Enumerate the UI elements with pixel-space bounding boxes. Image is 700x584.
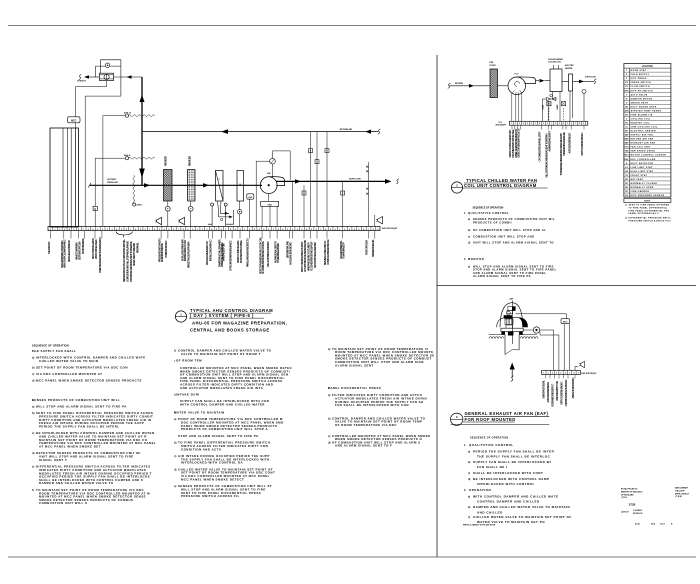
svg-text:AHU SPEC/EQUIP: AHU SPEC/EQUIP xyxy=(382,227,398,230)
svg-text:DAMPER AND CHILLED WATER VALVE: DAMPER AND CHILLED WATER VALVE TO MAINTA… xyxy=(473,505,570,509)
svg-text:EXHAUST AIR FAN: EXHAUST AIR FAN xyxy=(631,142,656,145)
svg-text:AND CHILLED: AND CHILLED xyxy=(477,510,503,514)
svg-text:SENT TO FIRE PANEL DIFFEREN: SENT TO FIRE PANEL DIFFEREN xyxy=(629,204,670,207)
svg-text:QUALITATIVE CONTROL: QUALITATIVE CONTROL xyxy=(469,443,514,447)
svg-text:DAMPER MOTOR: DAMPER MOTOR xyxy=(631,97,653,100)
svg-text:4: 4 xyxy=(116,228,117,231)
svg-text:SMOKE DETR: SMOKE DETR xyxy=(631,102,649,104)
svg-text:6: 6 xyxy=(221,229,222,231)
svg-text:9: 9 xyxy=(140,229,141,231)
svg-text:AHS-13: AHS-13 xyxy=(124,111,132,114)
svg-text:AND ACTUATOR MODULATES FRESH A: AND ACTUATOR MODULATES FRESH AIR INTA xyxy=(180,386,264,390)
svg-text:MCC PANEL WHEN SMOKE DETECTOR: MCC PANEL WHEN SMOKE DETECTOR SENSES PRO… xyxy=(36,378,142,382)
svg-text:2: 2 xyxy=(548,373,549,375)
svg-text:RETURN: RETURN xyxy=(455,83,464,85)
svg-text:4: 4 xyxy=(306,228,307,231)
svg-text:OUTSIDE: OUTSIDE xyxy=(107,179,117,181)
svg-text:2: 2 xyxy=(59,229,60,231)
svg-text:ACTUATOR MODULATES FRESH AIR: ACTUATOR MODULATES FRESH AIR xyxy=(304,240,307,272)
svg-text:5: 5 xyxy=(74,229,75,231)
svg-text:DIFF PRESS: DIFF PRESS xyxy=(631,78,647,80)
svg-text:SEQUENCE OF OPERATION: SEQUENCE OF OPERATION xyxy=(32,345,69,348)
svg-text:2: 2 xyxy=(249,229,250,231)
svg-text:ROOM LVL: ROOM LVL xyxy=(633,513,644,515)
svg-text:THE SUPPLY F: THE SUPPLY F xyxy=(48,241,51,254)
svg-text:FAN SHALL BE INTERLOCK: FAN SHALL BE INTERLOCK xyxy=(206,241,209,265)
svg-text:COMBUSTION UNIT WILL STOP AND: COMBUSTION UNIT WILL STOP AND xyxy=(473,234,535,238)
svg-text:3: 3 xyxy=(559,123,560,125)
svg-text:DETECTOR SENSES PRODUCTS: DETECTOR SENSES PRODUCTS xyxy=(518,128,521,157)
svg-text:CONTROL DAMPER AND CHILLED: CONTROL DAMPER AND CHILLED xyxy=(477,500,540,504)
svg-text:3: 3 xyxy=(349,229,350,231)
svg-text:SWITCH ACROSS FIL: SWITCH ACROSS FIL xyxy=(543,380,546,399)
svg-text:ii.: ii. xyxy=(174,393,176,397)
svg-text:AHU-05 FOR MAGAZINE PREPARATIO: AHU-05 FOR MAGAZINE PREPARATION, xyxy=(192,321,287,326)
svg-text:POINT OF ROOM: POINT OF ROOM xyxy=(366,240,369,255)
svg-text:SUPPLY AIR: SUPPLY AIR xyxy=(349,177,361,180)
svg-text:a): a) xyxy=(328,347,330,351)
svg-text:QUALITATIVE CONTROL: QUALITATIVE CONTROL xyxy=(468,211,509,215)
svg-text:3: 3 xyxy=(552,373,553,375)
svg-text:PRESSURE SWITCH ACROSS FIL: PRESSURE SWITCH ACROSS FIL xyxy=(181,494,240,498)
svg-text:4: 4 xyxy=(259,228,260,231)
svg-text:FRESH AIR: FRESH AIR xyxy=(107,181,118,184)
svg-text:ACROSS FILTER INDICATE: ACROSS FILTER INDICATE xyxy=(290,242,293,265)
svg-text:FAN SHALL BE INTERLOCKED WITH: FAN SHALL BE INTERLOCKED WITH CON xyxy=(335,403,409,407)
svg-text:3: 3 xyxy=(301,229,302,231)
svg-text:8: 8 xyxy=(373,229,374,231)
svg-text:ACROSS FILTER INDICA: ACROSS FILTER INDICA xyxy=(568,133,571,154)
svg-text:WITH CONTROL DAMPER AND CHILLE: WITH CONTROL DAMPER AND CHILLED WATER xyxy=(180,403,265,407)
svg-text:8: 8 xyxy=(325,229,326,231)
svg-text:7: 7 xyxy=(83,229,84,231)
svg-text:a): a) xyxy=(468,218,470,221)
svg-text:CHLD SUPPLY: CHLD SUPPLY xyxy=(631,74,650,76)
svg-text:FAN COIL UNIT: FAN COIL UNIT xyxy=(631,146,652,149)
svg-text:0: 0 xyxy=(335,229,336,231)
svg-text:c): c) xyxy=(174,454,176,458)
svg-text:c): c) xyxy=(468,516,470,519)
svg-text:9: 9 xyxy=(93,229,94,231)
svg-text:HEATING COIL: HEATING COIL xyxy=(631,121,651,124)
svg-text:APPR CONSULT: APPR CONSULT xyxy=(675,492,690,495)
svg-text:THE LIGHT: THE LIGHT xyxy=(675,490,685,492)
svg-text:1: 1 xyxy=(292,229,293,231)
svg-text:AT MCC PANEL WHEN SMOKE DET: AT MCC PANEL WHEN SMOKE DET xyxy=(39,444,101,448)
svg-text:LEGEND: LEGEND xyxy=(642,66,653,68)
svg-text:a): a) xyxy=(468,265,470,268)
svg-text:6: 6 xyxy=(78,229,79,231)
svg-text:2: 2 xyxy=(344,229,345,231)
svg-text:1 WORKS: 1 WORKS xyxy=(633,510,643,512)
svg-text:3: 3 xyxy=(254,229,255,231)
svg-text:7: 7 xyxy=(130,229,131,231)
svg-text:4: 4 xyxy=(354,228,355,231)
svg-text:LOW LIMIT STAT: LOW LIMIT STAT xyxy=(631,166,653,169)
svg-text:5.: 5. xyxy=(464,258,466,261)
svg-text:1: 1 xyxy=(102,229,103,231)
svg-text:AND CHILLED WATER VA: AND CHILLED WATER VA xyxy=(68,240,71,262)
svg-text:ELECTRIC: ELECTRIC xyxy=(565,65,575,67)
svg-text:AIR VENT: AIR VENT xyxy=(631,178,644,181)
svg-text:COOLING COIL: COOLING COIL xyxy=(631,118,651,120)
svg-text:VIA DDC CONTROLLER MOUNTED AT: VIA DDC CONTROLLER MOUNTED AT xyxy=(36,372,102,376)
svg-text:AND ACTUATOR MODU: AND ACTUATOR MODU xyxy=(572,377,575,398)
svg-text:3: 3 xyxy=(64,229,65,231)
svg-text:d): d) xyxy=(468,478,471,481)
svg-text:ACROSS FILTER INDICA: ACROSS FILTER INDICA xyxy=(547,382,550,403)
svg-text:FIRE DAMPER: FIRE DAMPER xyxy=(631,190,650,193)
svg-text:8: 8 xyxy=(230,229,231,231)
svg-text:5: 5 xyxy=(216,229,217,231)
svg-text:b): b) xyxy=(174,441,177,445)
svg-text:FIRE PANEL: FIRE PANEL xyxy=(136,242,139,253)
svg-text:NOTE:: NOTE: xyxy=(644,200,651,202)
svg-text:FROST STAT: FROST STAT xyxy=(631,174,648,177)
svg-text:d): d) xyxy=(32,378,35,382)
svg-text:MAINTAIN SET POINT: MAINTAIN SET POINT xyxy=(223,242,226,261)
svg-text:COMBUSTION UNIT WILL S: COMBUSTION UNIT WILL S xyxy=(39,501,87,505)
svg-text:d): d) xyxy=(468,242,470,245)
svg-text:ALARM SIGNAL SENT: ALARM SIGNAL SENT xyxy=(335,363,374,367)
svg-text:PERIOD THE SUPPLY FAN SHALL BE: PERIOD THE SUPPLY FAN SHALL BE INTER xyxy=(473,449,555,453)
svg-text:FINE FILTER: FINE FILTER xyxy=(190,155,192,166)
svg-text:9: 9 xyxy=(282,229,283,231)
svg-text:9: 9 xyxy=(377,229,378,231)
svg-text:2: 2 xyxy=(202,229,203,231)
svg-text:( T.R.H.: ( T.R.H. xyxy=(621,497,628,499)
svg-text:5: 5 xyxy=(263,229,264,231)
svg-text:MONITOR: MONITOR xyxy=(468,257,484,261)
svg-text:CHW COOLING COIL: CHW COOLING COIL xyxy=(631,127,659,129)
svg-text:4.: 4. xyxy=(328,386,330,390)
svg-text:b): b) xyxy=(468,506,471,509)
svg-text:2: 2 xyxy=(555,123,556,125)
svg-text:DIFFERENTIAL PRESSURE: DIFFERENTIAL PRESSURE xyxy=(563,132,566,156)
svg-text:FILTER: FILTER xyxy=(490,65,497,67)
svg-text:PANEL DIFFERENTIAL PRESS: PANEL DIFFERENTIAL PRESS xyxy=(328,386,381,390)
svg-text:SHALL BE INTERLOCKED WITH CONT: SHALL BE INTERLOCKED WITH CONT xyxy=(473,471,543,475)
svg-text:8: 8 xyxy=(278,229,279,231)
svg-text:0: 0 xyxy=(145,229,146,231)
svg-text:2: 2 xyxy=(297,229,298,231)
svg-text:WATER VALVE TO MAINTAIN: WATER VALVE TO MAINTAIN xyxy=(174,411,225,415)
svg-text:5: 5 xyxy=(311,229,312,231)
svg-text:9: 9 xyxy=(330,229,331,231)
svg-text:PRE FILTER: PRE FILTER xyxy=(166,156,168,166)
svg-text:FAN SHALL BE I: FAN SHALL BE I xyxy=(477,465,507,469)
svg-text:PRODUCTS OF COMBU: PRODUCTS OF COMBU xyxy=(473,221,512,225)
svg-text:WITH CONTROL DAMPER AND CHILLE: WITH CONTROL DAMPER AND CHILLED WATE xyxy=(473,494,558,498)
svg-text:1.: 1. xyxy=(32,349,34,353)
svg-text:5: 5 xyxy=(168,229,169,231)
svg-text:b): b) xyxy=(468,229,470,232)
svg-text:WHEN SMOKE DETECTOR SENSES PRO: WHEN SMOKE DETECTOR SENSES PRO xyxy=(99,237,102,273)
svg-text:c): c) xyxy=(32,372,34,376)
svg-text:3: 3 xyxy=(519,123,520,125)
svg-text:d): d) xyxy=(174,467,177,471)
svg-text:OF COMBUSTION UNIT WILL STOP A: OF COMBUSTION UNIT WILL STOP AND AL xyxy=(473,228,546,232)
svg-text:VSD: VSD xyxy=(625,151,630,153)
svg-text:3: 3 xyxy=(159,229,160,231)
svg-text:CONTROL DAMPER AND CHI: CONTROL DAMPER AND CHI xyxy=(327,239,330,265)
svg-text:ALARM SIGNAL SENT T: ALARM SIGNAL SENT T xyxy=(549,130,552,151)
svg-text:1: 1 xyxy=(149,229,150,231)
svg-text:a): a) xyxy=(468,450,470,453)
svg-text:1: 1 xyxy=(543,373,544,375)
svg-text:WILL STOP AND ALARM SIGN: WILL STOP AND ALARM SIGN xyxy=(267,241,270,267)
svg-text:b): b) xyxy=(468,461,471,464)
svg-text:VSD: VSD xyxy=(267,204,272,206)
svg-text:3.: 3. xyxy=(174,411,176,415)
svg-text:c): c) xyxy=(328,434,330,438)
svg-text:TO FIRE PANEL DIFFERENTIAL: TO FIRE PANEL DIFFERENTIAL xyxy=(629,206,669,209)
svg-text:e): e) xyxy=(174,484,176,488)
svg-text:8: 8 xyxy=(573,373,574,375)
svg-text:6: 6 xyxy=(268,229,269,231)
svg-text:NORMALLY CLOSED: NORMALLY CLOSED xyxy=(631,182,658,185)
svg-text:8: 8 xyxy=(135,229,136,231)
svg-text:7: 7 xyxy=(575,123,576,125)
svg-text:OF COMBUSTION UNIT WILL STOP: OF COMBUSTION UNIT WILL STOP xyxy=(539,131,542,161)
svg-text:GENERAL EXHAUST AIR FAN (EAF): GENERAL EXHAUST AIR FAN (EAF) xyxy=(465,411,549,416)
svg-text:HEATER: HEATER xyxy=(565,67,573,70)
svg-text:7: 7 xyxy=(320,229,321,231)
svg-text:9: 9 xyxy=(543,123,544,125)
svg-text:1: 1 xyxy=(551,123,552,125)
svg-text:PERIOD THE SUPPLY FAN SHA: PERIOD THE SUPPLY FAN SHA xyxy=(187,241,190,268)
svg-text:SUPPLY FAN SHALL BE INTER: SUPPLY FAN SHALL BE INTER xyxy=(314,242,317,268)
svg-text:ROYAL PROJECTS: ROYAL PROJECTS xyxy=(621,488,638,491)
svg-text:THE SUPPLY FAN SHALL BE INTERL: THE SUPPLY FAN SHALL BE INTERLOC xyxy=(477,454,551,458)
svg-text:( T M B ): ( T M B ) xyxy=(675,496,682,498)
svg-text:9: 9 xyxy=(187,229,188,231)
svg-text:COIL UNIT CONTROL DIAGRAM: COIL UNIT CONTROL DIAGRAM xyxy=(464,183,537,188)
svg-text:8: 8 xyxy=(539,123,540,125)
svg-text:6: 6 xyxy=(571,123,572,125)
svg-text:PRODUCTS OF COMBUSTION UNIT WI: PRODUCTS OF COMBUSTION UNIT WILL STOP A xyxy=(181,427,268,431)
svg-text:7: 7 xyxy=(368,229,369,231)
svg-text:SENSES PRODUCTS OF COMBUSTION: SENSES PRODUCTS OF COMBUSTION UNIT WILL xyxy=(32,398,120,402)
svg-text:AT MCC PANEL WHEN: AT MCC PANEL WHEN xyxy=(95,239,98,259)
svg-text:6: 6 xyxy=(316,229,317,231)
svg-text:PANEL WHEN SMOKE DETECTO: PANEL WHEN SMOKE DETECTO xyxy=(247,238,250,267)
svg-text:FCU: FCU xyxy=(515,74,520,76)
svg-text:SET POINT OF ROOM TEMPERATURE: SET POINT OF ROOM TEMPERATURE VIA DDC CO… xyxy=(36,365,128,369)
svg-text:OCCUPIED PERIOD THE SUPPLY F: OCCUPIED PERIOD THE SUPPLY F xyxy=(310,241,313,271)
svg-text:SUPPLY AIR: SUPPLY AIR xyxy=(585,75,596,78)
svg-text:UNIT WILL STOP AND ALARM SIGNA: UNIT WILL STOP AND ALARM SIGNAL SENT TO xyxy=(473,241,554,245)
svg-text:CONDITION AND ACTU: CONDITION AND ACTU xyxy=(181,447,222,451)
svg-text:OPERATION: OPERATION xyxy=(469,488,491,492)
svg-text:VAR SPEED DRIVE: VAR SPEED DRIVE xyxy=(631,150,656,153)
svg-text:TEMPERATURE VIA: TEMPERATURE VIA xyxy=(372,239,375,257)
svg-text:BE INTERLOCKED WITH CONTROL DA: BE INTERLOCKED WITH CONTROL DAMP xyxy=(473,477,549,481)
svg-text:FILTER INDICATES DIR: FILTER INDICATES DIR xyxy=(161,243,164,262)
svg-text:2: 2 xyxy=(107,229,108,231)
svg-text:TO MAINTAIN SET P: TO MAINTAIN SET P xyxy=(343,242,346,259)
svg-text:CHWS IN: CHWS IN xyxy=(77,80,86,82)
svg-text:b): b) xyxy=(32,365,35,369)
svg-text:0: 0 xyxy=(97,229,98,231)
svg-text:4: 4 xyxy=(211,228,212,231)
svg-text:MAIN LIBRARY: MAIN LIBRARY xyxy=(675,487,689,490)
svg-text:f): f) xyxy=(174,349,176,353)
svg-text:5: 5 xyxy=(527,123,528,125)
svg-text:AVRGING TEMP SENSR: AVRGING TEMP SENSR xyxy=(631,109,662,112)
svg-text:MOTOR CONTROL CENTER: MOTOR CONTROL CENTER xyxy=(631,155,667,157)
svg-text:a): a) xyxy=(468,495,470,498)
svg-text:DIFFERENTIAL PRESSURE SWITC: DIFFERENTIAL PRESSURE SWITC xyxy=(629,217,672,220)
svg-text:6: 6 xyxy=(173,229,174,231)
svg-text:HIGH LIMIT STAT: HIGH LIMIT STAT xyxy=(631,170,654,173)
svg-text:1: 1 xyxy=(55,229,56,231)
svg-text:6: 6 xyxy=(565,373,566,375)
svg-text:CENTRAL AND BOOKS STORAGE: CENTRAL AND BOOKS STORAGE xyxy=(190,328,270,333)
svg-text:9: 9 xyxy=(235,229,236,231)
svg-text:6: 6 xyxy=(126,229,127,231)
svg-text:d): d) xyxy=(328,440,331,444)
svg-text:a): a) xyxy=(32,405,34,409)
svg-text:DDC: DDC xyxy=(625,159,630,161)
svg-text:FLOW SWITCH: FLOW SWITCH xyxy=(631,86,650,88)
svg-text:MCC: MCC xyxy=(71,119,77,122)
svg-text:( DAY ) SYSTEM ( PIPE-6 ): ( DAY ) SYSTEM ( PIPE-6 ) xyxy=(190,313,254,318)
svg-text:DIRTY CONDITION AND AC: DIRTY CONDITION AND AC xyxy=(581,132,584,155)
svg-text:STOP AND ALARM SIGNAL SENT TO: STOP AND ALARM SIGNAL SENT TO FIRE PA xyxy=(178,434,259,438)
svg-text:INTAKE DURI: INTAKE DURI xyxy=(176,393,200,397)
svg-text:9: 9 xyxy=(578,373,579,375)
svg-text:AHS-1: AHS-1 xyxy=(137,204,144,207)
svg-text:1.: 1. xyxy=(464,444,466,447)
svg-text:7: 7 xyxy=(569,373,570,375)
svg-text:ROOM STAT: ROOM STAT xyxy=(631,69,647,72)
svg-text:0: 0 xyxy=(547,123,548,125)
svg-text:CONDITION AND ACTUATOR M: CONDITION AND ACTUATOR M xyxy=(565,380,568,407)
svg-text:ROOM TEMPERA: ROOM TEMPERA xyxy=(82,238,85,254)
svg-text:d): d) xyxy=(32,451,35,455)
svg-text:PANEL DIFFERENTIAL P: PANEL DIFFERENTIAL P xyxy=(629,212,660,215)
svg-text:0: 0 xyxy=(192,229,193,231)
svg-text:OF ROOM TEMPERATURE VIA DDC: OF ROOM TEMPERATURE VIA DDC xyxy=(335,423,397,427)
svg-text:5: 5 xyxy=(567,123,568,125)
svg-text:PRESSURE SWITCH ACROSS FILT: PRESSURE SWITCH ACROSS FILT xyxy=(629,219,672,222)
svg-text:CHILLED WATER: CHILLED WATER xyxy=(548,58,563,61)
svg-text:0: 0 xyxy=(50,229,51,231)
svg-text:OF COMBUSTION UNIT WILL STOP A: OF COMBUSTION UNIT WILL STOP AN xyxy=(262,241,265,274)
svg-text:7: 7 xyxy=(225,229,226,231)
svg-text:INTERLOCKED WITH CONTROL: INTERLOCKED WITH CONTROL xyxy=(477,482,535,486)
svg-text:PRESS SWITCH: PRESS SWITCH xyxy=(631,82,652,84)
svg-text:ALARM SIGNAL SENT TO FIRE PA: ALARM SIGNAL SENT TO FIRE PA xyxy=(473,274,531,278)
svg-text:a): a) xyxy=(174,417,176,421)
svg-text:8: 8 xyxy=(88,229,89,231)
svg-text:6: 6 xyxy=(363,229,364,231)
svg-text:ELECTRIC HEATER: ELECTRIC HEATER xyxy=(631,130,656,133)
svg-text:4: 4 xyxy=(69,228,70,231)
svg-text:SEQUENCE OF OPERATION: SEQUENCE OF OPERATION xyxy=(470,436,508,439)
svg-text:CHWR: CHWR xyxy=(557,104,559,110)
svg-text:1: 1 xyxy=(339,229,340,231)
svg-text:INDICATES DIRTY CON: INDICATES DIRTY CON xyxy=(556,381,559,401)
svg-text:MCC PANEL WHEN SMOKE DETECT: MCC PANEL WHEN SMOKE DETECT xyxy=(181,477,244,481)
svg-text:NORMALLY OPEN: NORMALLY OPEN xyxy=(631,186,654,189)
svg-text:5: 5 xyxy=(121,229,122,231)
svg-text:5: 5 xyxy=(358,229,359,231)
svg-text:4: 4 xyxy=(164,228,165,231)
svg-text:3: 3 xyxy=(206,229,207,231)
svg-text:DDC CONTROLLER: DDC CONTROLLER xyxy=(631,159,656,161)
svg-text:2.: 2. xyxy=(32,398,34,402)
svg-text:FILTER INDICATES DIRTY C: FILTER INDICATES DIRTY C xyxy=(552,383,555,406)
svg-text:SUPPLY FAN SHALL BE INTERLOCKE: SUPPLY FAN SHALL BE INTERLOCKED WI xyxy=(473,460,551,464)
svg-text:THE SUPPLY FAN SHALL: THE SUPPLY FAN SHALL xyxy=(32,349,76,353)
svg-text:e): e) xyxy=(32,465,34,469)
svg-text:1: 1 xyxy=(197,229,198,231)
svg-text:MCC: MCC xyxy=(563,322,568,324)
svg-text:f): f) xyxy=(32,488,34,492)
svg-text:5: 5 xyxy=(561,373,562,375)
svg-text:CHILLED WATER VALVE TO MAINTAI: CHILLED WATER VALVE TO MAINTAIN SET POIN… xyxy=(473,515,572,519)
svg-text:DIFF PRESSURE SENSOR: DIFF PRESSURE SENSOR xyxy=(631,195,665,197)
svg-text:MCC: MCC xyxy=(624,155,629,157)
svg-text:DIRTY CONDITION AND AC: DIRTY CONDITION AND AC xyxy=(561,381,564,404)
svg-text:SUPPLY AIR FAN: SUPPLY AIR FAN xyxy=(631,134,654,137)
svg-text:OF ROOM TEMPERATURE VIA DDC: OF ROOM TEMPERATURE VIA DDC xyxy=(229,240,232,271)
svg-text:3: 3 xyxy=(112,229,113,231)
svg-text:FOR ROOF MOUNTED: FOR ROOF MOUNTED xyxy=(465,417,516,422)
svg-text:CHILLED WATER VALVE TO MAIN: CHILLED WATER VALVE TO MAIN xyxy=(39,359,98,363)
svg-text:AND ALARM SIGNAL SENT TO F: AND ALARM SIGNAL SENT TO F xyxy=(335,444,392,448)
svg-text:DUCT DETECTOR: DUCT DETECTOR xyxy=(631,163,654,165)
svg-text:PERIOD THE SUPPLY FAN SHALL BE: PERIOD THE SUPPLY FAN SHALL BE INTERL xyxy=(39,424,120,428)
svg-text:OF HIGHLAND: OF HIGHLAND xyxy=(621,493,634,496)
svg-text:FCU: FCU xyxy=(625,147,630,149)
svg-text:DIFF PR SWITCH: DIFF PR SWITCH xyxy=(631,90,654,92)
svg-text:FIRE PANEL DIFFERENTIAL PRE: FIRE PANEL DIFFERENTIAL PRE xyxy=(629,209,670,212)
svg-text:WITH CONTROL DAMPER AND C: WITH CONTROL DAMPER AND C xyxy=(64,239,67,268)
svg-text:8: 8 xyxy=(183,229,184,231)
svg-text:RETURN AIR FAN: RETURN AIR FAN xyxy=(631,138,654,141)
svg-text:OF ROOM TEM: OF ROOM TEM xyxy=(176,359,202,363)
svg-text:0: 0 xyxy=(287,229,288,231)
svg-text:7: 7 xyxy=(273,229,274,231)
svg-text:c): c) xyxy=(468,235,470,238)
svg-text:1: 1 xyxy=(244,229,245,231)
svg-text:INTERLOCKED WITH CO: INTERLOCKED WITH CO xyxy=(210,239,213,261)
svg-text:0: 0 xyxy=(240,229,241,231)
svg-text:MOUNTED AT MCC PANEL: MOUNTED AT MCC PANEL xyxy=(240,239,243,263)
svg-text:DAMPER AND CHILLED WATER VALVE: DAMPER AND CHILLED WATER VALVE TO xyxy=(39,481,114,485)
svg-text:H-17: H-17 xyxy=(660,523,666,525)
svg-text:MINISTRY OF EDUCATIO: MINISTRY OF EDUCATIO xyxy=(621,490,643,493)
svg-text:DUCT SMOKE DETR: DUCT SMOKE DETR xyxy=(631,106,657,108)
svg-text:b): b) xyxy=(32,411,35,415)
svg-text:VALVE TO MAINTAIN SET POINT OF: VALVE TO MAINTAIN SET POINT OF ROOM T xyxy=(181,352,261,356)
svg-text:1.: 1. xyxy=(464,212,466,215)
svg-text:1: 1 xyxy=(511,123,512,125)
svg-text:7: 7 xyxy=(535,123,536,125)
svg-text:E-30: E-30 xyxy=(635,523,640,525)
svg-text:b): b) xyxy=(328,416,331,420)
svg-text:9: 9 xyxy=(583,123,584,125)
svg-text:7: 7 xyxy=(178,229,179,231)
svg-text:a): a) xyxy=(328,393,330,397)
svg-text:2: 2 xyxy=(515,123,516,125)
svg-text:SEQUENCE OF OPERATION: SEQUENCE OF OPERATION xyxy=(473,206,504,209)
svg-text:EAF SPEC/EQUIP: EAF SPEC/EQUIP xyxy=(581,372,597,375)
svg-text:3728: 3728 xyxy=(629,503,636,507)
